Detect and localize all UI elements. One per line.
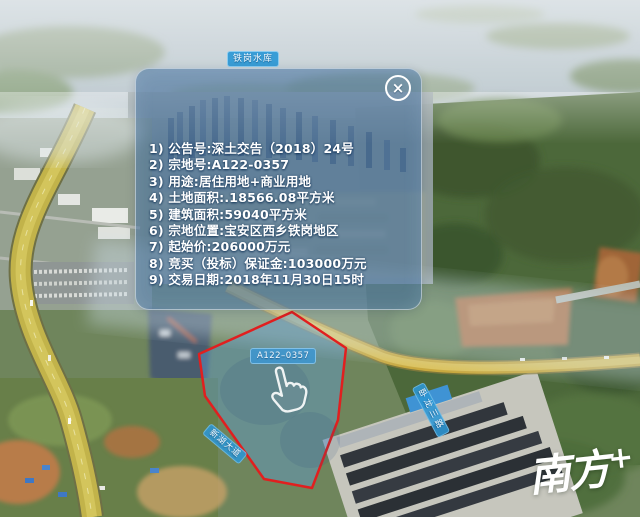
panel-line: 3) 用途:居住用地+商业用地 (149, 174, 413, 190)
panel-line: 8) 竞买（投标）保证金:103000万元 (149, 256, 413, 272)
logo-plus-icon: + (606, 440, 635, 477)
panel-line: 7) 起始价:206000万元 (149, 239, 413, 255)
land-info-panel: × 1) 公告号:深土交告（2018）24号 2) 宗地号:A122-0357 … (135, 68, 422, 310)
panel-line: 2) 宗地号:A122-0357 (149, 157, 413, 173)
nanfang-plus-logo: 南方+ (525, 433, 637, 505)
panel-line: 4) 土地面积:.18566.08平方米 (149, 190, 413, 206)
parcel-id-label: A122–0357 (250, 348, 316, 364)
panel-line: 6) 宗地位置:宝安区西乡铁岗地区 (149, 223, 413, 239)
panel-line: 9) 交易日期:2018年11月30日15时 (149, 272, 413, 288)
panel-line: 5) 建筑面积:59040平方米 (149, 207, 413, 223)
panel-line: 1) 公告号:深土交告（2018）24号 (149, 141, 413, 157)
reservoir-label: 铁岗水库 (227, 51, 279, 67)
logo-text: 南方 (526, 444, 611, 501)
land-auction-panorama-viewer: A122–0357 铁岗水库 新湖大道 卧龙三路 × 1) 公告号:深土交告（2… (0, 0, 640, 517)
land-info-list: 1) 公告号:深土交告（2018）24号 2) 宗地号:A122-0357 3)… (149, 141, 413, 289)
close-button[interactable]: × (385, 75, 411, 101)
